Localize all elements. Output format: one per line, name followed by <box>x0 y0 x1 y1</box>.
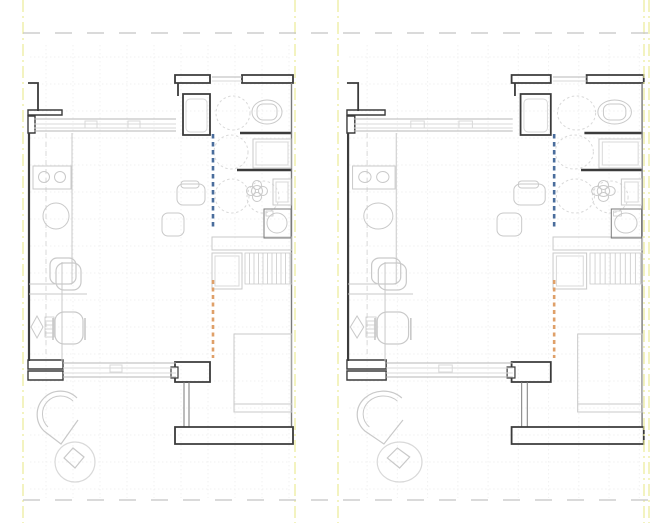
wall-top-a <box>175 75 210 83</box>
cabinet <box>212 253 242 289</box>
wall-pilaster-top <box>347 83 358 111</box>
window-jamb-topleft <box>347 116 355 133</box>
window-jamb-botleft-a <box>347 360 386 369</box>
drying-rack-frame <box>245 253 292 284</box>
lounge-chair-inner <box>42 396 73 427</box>
desk-chair-top <box>56 263 81 290</box>
bed <box>578 334 643 412</box>
cooktop-burner-1 <box>39 172 50 183</box>
cooktop-burner-2 <box>55 172 66 183</box>
bed <box>234 334 292 412</box>
wall-door-bottom <box>175 362 210 382</box>
window-jamb-botleft-b <box>347 371 386 380</box>
cabinet <box>553 253 587 289</box>
floor-plan-right-grid <box>349 45 640 498</box>
counter-island <box>212 237 292 250</box>
counter-island <box>553 237 643 250</box>
wall-top-a <box>512 75 551 83</box>
shaft-appliance <box>186 99 207 132</box>
shower-tray <box>253 139 291 168</box>
basin-tap-petal-4 <box>605 187 615 196</box>
turning-circle-3 <box>215 179 249 213</box>
side-table-object <box>387 448 409 468</box>
wall-top-b <box>587 75 644 83</box>
lounge-chair-outer <box>357 391 403 444</box>
wall-pilaster-base <box>28 110 62 115</box>
shaft-appliance <box>524 99 548 132</box>
desk-chair-top <box>378 263 406 290</box>
side-table-object <box>64 448 84 468</box>
shower-tray-inner <box>256 142 288 165</box>
washing-machine-panel <box>266 211 273 216</box>
turning-circle-2 <box>555 135 593 169</box>
turning-circle-4 <box>592 181 628 213</box>
shower-tray-inner <box>602 142 638 165</box>
floor-plan-left-grid <box>30 45 290 498</box>
floor-plan-right <box>347 45 644 498</box>
window-jamb-botleft-b <box>28 371 63 380</box>
basin-tap-center <box>252 186 263 197</box>
office-chair <box>55 312 83 344</box>
wall-pilaster-top <box>28 83 38 111</box>
basin-tap-center <box>597 186 609 197</box>
shower-tray <box>599 139 642 168</box>
turning-circle-4 <box>247 181 279 213</box>
cooktop-burner-2 <box>377 172 389 183</box>
office-chair <box>377 312 408 344</box>
kitchen-sink <box>364 203 393 229</box>
floor-plan-left <box>28 45 293 498</box>
turning-circle-1 <box>558 96 596 130</box>
stool <box>497 213 522 236</box>
toilet-seat <box>257 104 277 120</box>
turning-circle-3 <box>556 179 594 213</box>
window-jamb-topleft <box>28 116 35 133</box>
wall-top-b <box>242 75 293 83</box>
turning-circle-1 <box>216 96 250 130</box>
side-table <box>377 442 422 482</box>
lounge-chair-inner <box>363 396 397 427</box>
toilet-seat <box>603 104 625 120</box>
stool <box>162 213 184 236</box>
floor-plan-sheet <box>0 0 665 523</box>
floor-plan-drawing <box>0 0 665 523</box>
washing-machine-panel <box>614 211 622 216</box>
wall-door-bottom <box>512 362 551 382</box>
drying-rack <box>245 253 292 284</box>
cooktop-burner-1 <box>359 172 371 183</box>
desk-lamp <box>31 316 43 338</box>
drying-rack-frame <box>590 253 643 284</box>
kitchen-sink <box>43 203 69 229</box>
turning-circle-2 <box>214 135 248 169</box>
drying-rack <box>590 253 643 284</box>
